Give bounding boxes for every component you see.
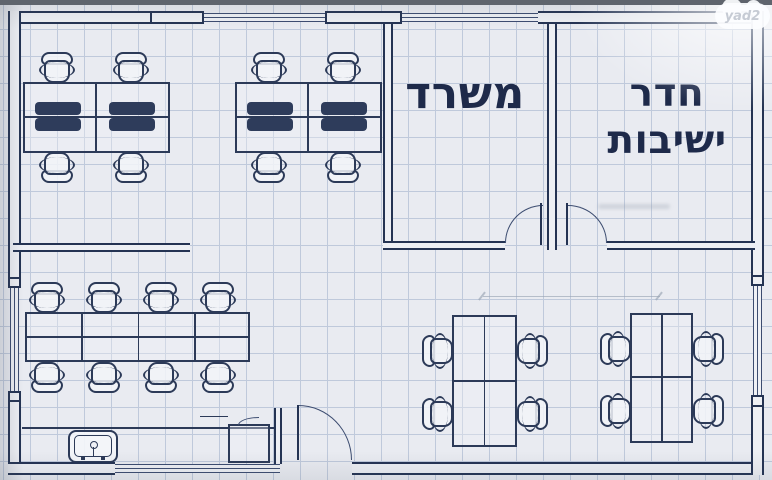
monitor-pair-top-3 (247, 102, 293, 115)
chair-10 (87, 282, 121, 313)
chair-15 (144, 362, 178, 393)
left-wall-upper (8, 11, 21, 277)
door-leaf-entry (297, 405, 299, 460)
kitchen-partition-wall (13, 243, 190, 252)
door-leaf-office (540, 203, 542, 245)
monitor-pair-top-1 (35, 102, 81, 115)
chair-arms (86, 367, 122, 383)
room-label-office: משרד (386, 68, 544, 119)
dimension-tick-right (655, 292, 663, 301)
photo-top-edge (0, 0, 772, 5)
chair-arms (522, 396, 538, 432)
pencil-smudge (598, 204, 670, 209)
chair-arms (29, 367, 65, 383)
monitor-pair-top-2 (109, 102, 155, 115)
chair-arms (200, 292, 236, 308)
chair-20 (517, 397, 548, 431)
chair-2 (114, 52, 148, 83)
sink-drain-right (101, 456, 105, 460)
chair-21 (600, 332, 631, 366)
chair-19 (517, 334, 548, 368)
window-right (753, 286, 762, 395)
room-label-meeting-line2: ישיבות (578, 117, 756, 164)
sink-faucet (90, 441, 98, 449)
office-wall-left (383, 24, 393, 250)
door-leaf-meeting-room (566, 203, 568, 245)
room-label-meeting-room: חדר ישיבות (578, 70, 756, 164)
sink-drain-left (81, 456, 85, 460)
chair-6 (326, 52, 360, 83)
chair-1 (40, 52, 74, 83)
chair-arms (86, 292, 122, 308)
chair-16 (201, 362, 235, 393)
chair-arms (113, 62, 149, 78)
entry-door-jamb (274, 408, 282, 464)
door-arc-office (505, 205, 543, 243)
chair-3 (40, 152, 74, 183)
chair-arms (698, 393, 714, 429)
top-wall-pier-2 (325, 11, 402, 24)
right-wall-lower (751, 407, 764, 475)
monitor-pair-top-4 (321, 102, 367, 115)
chair-arms (143, 292, 179, 308)
dimension-line (483, 296, 660, 297)
chair-arms (610, 393, 626, 429)
door-arc-meeting-room (568, 205, 607, 243)
chair-arms (200, 367, 236, 383)
chair-arms (325, 62, 361, 78)
chair-11 (144, 282, 178, 313)
chair-arms (143, 367, 179, 383)
cabinet (228, 424, 270, 463)
chair-arms (610, 331, 626, 367)
chair-8 (326, 152, 360, 183)
counter-edge-2 (200, 416, 228, 417)
chair-5 (252, 52, 286, 83)
monitor-pair-bottom-2 (109, 118, 155, 131)
team-table-2-centerline-v (661, 314, 663, 442)
chair-arms (113, 157, 149, 173)
yad2-logo: yad2 (715, 3, 770, 29)
chair-18 (422, 397, 453, 431)
left-wall-pier-bottom (8, 391, 21, 402)
chair-13 (30, 362, 64, 393)
top-wall-left (8, 11, 150, 24)
chair-12 (201, 282, 235, 313)
rooms-divider-wall (547, 24, 557, 250)
cabinet-handle (238, 417, 259, 425)
chair-arms (39, 62, 75, 78)
chair-arms (698, 331, 714, 367)
chair-arms (29, 292, 65, 308)
right-wall-pier-bottom (751, 395, 764, 407)
window-left (10, 288, 19, 391)
chair-17 (422, 334, 453, 368)
sink-faucet-stem (93, 447, 95, 457)
team-table-2-centerline-h (631, 376, 692, 378)
door-arc-entry (298, 405, 352, 460)
chair-4 (114, 152, 148, 183)
window-bottom (115, 464, 280, 473)
chair-arms (325, 157, 361, 173)
chair-arms (251, 157, 287, 173)
chair-arms (432, 396, 448, 432)
chair-24 (693, 394, 724, 428)
monitor-pair-bottom-3 (247, 118, 293, 131)
left-wall-pier-top (8, 277, 21, 288)
bottom-wall-left (8, 462, 115, 475)
chair-7 (252, 152, 286, 183)
blueprint-photo: משרד חדר ישיבות yad2 (0, 0, 772, 480)
room-label-meeting-line1: חדר (578, 70, 756, 117)
chair-14 (87, 362, 121, 393)
chair-arms (39, 157, 75, 173)
monitor-pair-bottom-1 (35, 118, 81, 131)
right-wall-pier-top (751, 275, 764, 286)
chair-arms (432, 333, 448, 369)
window-top-2 (402, 13, 538, 22)
chair-9 (30, 282, 64, 313)
window-top-1 (204, 13, 325, 22)
chair-arms (522, 333, 538, 369)
monitor-pair-bottom-4 (321, 118, 367, 131)
chair-23 (693, 332, 724, 366)
yad2-logo-text: yad2 (715, 3, 770, 29)
top-wall-pier-1 (150, 11, 204, 24)
chair-22 (600, 394, 631, 428)
office-wall-bottom (383, 241, 505, 250)
team-table-1-centerline-h (453, 380, 516, 382)
bottom-wall-right (352, 462, 764, 475)
chair-arms (251, 62, 287, 78)
conference-table-centerline (26, 336, 249, 338)
meeting-room-wall-bottom (607, 241, 755, 250)
